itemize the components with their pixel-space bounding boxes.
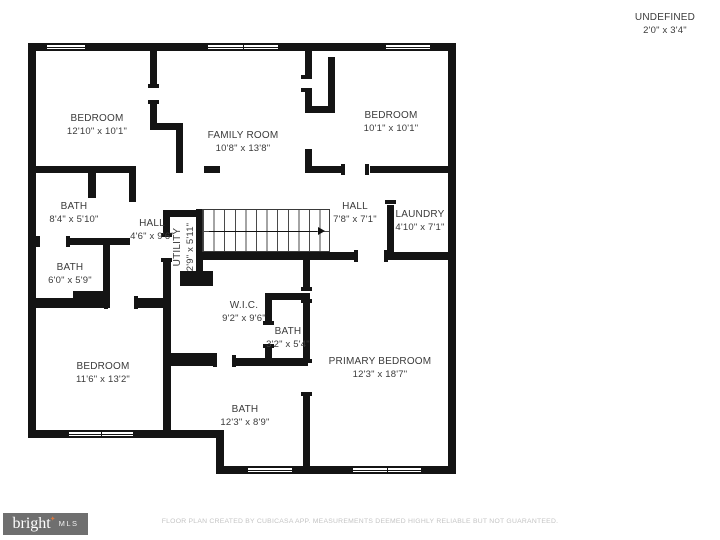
room-name: FAMILY ROOM (208, 130, 279, 143)
room-name: UNDEFINED (635, 12, 695, 25)
wall-segment (163, 353, 217, 366)
wall-segment (163, 262, 171, 434)
wall-segment (305, 51, 312, 77)
room-label-hall-right: HALL 7'8" x 7'1" (333, 201, 377, 226)
room-name: BEDROOM (364, 110, 419, 123)
stairs-arrow-head (318, 227, 325, 235)
room-dimensions: 2'0" x 3'4" (635, 24, 695, 36)
wall-segment (150, 51, 157, 87)
window-mullion (387, 468, 388, 472)
room-label-bath-bottom: BATH 12'3" x 8'9" (220, 404, 269, 429)
room-name: HALL (130, 218, 174, 231)
wall-segment (448, 43, 456, 474)
room-label-laundry: LAUNDRY 4'10" x 7'1" (395, 209, 444, 234)
room-name: BATH (266, 326, 310, 339)
room-name: UTILITY (172, 223, 185, 272)
window (385, 44, 431, 50)
wall-segment (265, 348, 272, 366)
room-label-bedroom-top-left: BEDROOM 12'10" x 10'1" (67, 113, 127, 138)
window-glass-line (386, 47, 430, 48)
room-label-hall-left: HALL 4'6" x 9'6" (130, 218, 174, 243)
room-dimensions: 12'10" x 10'1" (67, 125, 127, 137)
window (207, 44, 279, 50)
room-label-family-room: FAMILY ROOM 10'8" x 13'8" (208, 130, 279, 155)
room-label-primary-bedroom: PRIMARY BEDROOM 12'3" x 18'7" (329, 356, 432, 381)
door-jamb (301, 392, 312, 396)
room-name: BATH (220, 404, 269, 417)
window (247, 467, 293, 473)
room-dimensions: 2'9" x 5'11" (184, 223, 196, 272)
wall-segment (180, 271, 213, 286)
door-jamb (365, 164, 369, 175)
stairs-direction-arrow (209, 231, 317, 232)
wall-segment (28, 166, 136, 173)
window (46, 44, 86, 50)
disclaimer-text: FLOOR PLAN CREATED BY CUBICASA APP. MEAS… (0, 518, 720, 525)
window-glass-line (248, 470, 292, 471)
room-dimensions: 4'6" x 9'6" (130, 230, 174, 242)
door-jamb (341, 164, 345, 175)
door-jamb (148, 100, 159, 104)
door-jamb (385, 200, 396, 204)
wall-segment (305, 106, 335, 113)
door-jamb (301, 359, 312, 363)
room-dimensions: 12'3" x 18'7" (329, 368, 432, 380)
room-label-bath-mid-left: BATH 6'0" x 5'9" (48, 262, 92, 287)
wall-segment (204, 166, 220, 173)
window-glass-line (47, 47, 85, 48)
room-name: BATH (49, 201, 98, 214)
floor-plan-page: BEDROOM 12'10" x 10'1" FAMILY ROOM 10'8"… (0, 0, 720, 540)
room-name: PRIMARY BEDROOM (329, 356, 432, 369)
door-jamb (384, 250, 388, 262)
window (68, 431, 134, 437)
room-dimensions: 9'2" x 9'6" (222, 312, 266, 324)
wall-segment (370, 166, 448, 173)
door-jamb (104, 296, 108, 309)
wall-segment (70, 238, 130, 245)
room-label-utility: UTILITY 2'9" x 5'11" (172, 223, 197, 272)
room-name: BEDROOM (67, 113, 127, 126)
wall-segment (387, 205, 394, 252)
door-jamb (301, 299, 312, 303)
door-jamb (134, 296, 138, 309)
window-mullion (243, 45, 244, 49)
room-label-bath-small: BATH 3'2" x 5'4" (266, 326, 310, 351)
wall-segment (88, 173, 96, 198)
door-jamb (301, 88, 312, 92)
door-jamb (301, 75, 312, 79)
room-name: BEDROOM (76, 361, 130, 374)
wall-segment (129, 166, 136, 202)
door-jamb (354, 250, 358, 262)
room-dimensions: 4'10" x 7'1" (395, 221, 444, 233)
door-jamb (161, 258, 172, 262)
wall-segment (303, 255, 310, 290)
room-dimensions: 10'1" x 10'1" (364, 122, 419, 134)
wall-segment (197, 252, 357, 260)
room-dimensions: 3'2" x 5'4" (266, 338, 310, 350)
wall-segment (328, 57, 335, 113)
door-jamb (232, 355, 236, 367)
door-jamb (66, 236, 70, 247)
room-label-undefined-space: UNDEFINED 2'0" x 3'4" (635, 12, 695, 37)
staircase (202, 209, 330, 252)
wall-segment (387, 252, 448, 260)
room-name: W.I.C. (222, 300, 266, 313)
room-label-wic: W.I.C. 9'2" x 9'6" (222, 300, 266, 325)
wall-segment (303, 396, 310, 474)
window (352, 467, 422, 473)
door-jamb (301, 287, 312, 291)
wall-segment (103, 245, 110, 295)
wall-segment (176, 123, 183, 173)
room-dimensions: 7'8" x 7'1" (333, 213, 377, 225)
room-dimensions: 6'0" x 5'9" (48, 274, 92, 286)
room-label-bedroom-top-right: BEDROOM 10'1" x 10'1" (364, 110, 419, 135)
wall-segment (305, 166, 345, 173)
room-dimensions: 12'3" x 8'9" (220, 416, 269, 428)
window-mullion (101, 432, 102, 436)
door-jamb (148, 84, 159, 88)
room-dimensions: 10'8" x 13'8" (208, 142, 279, 154)
wall-segment (28, 43, 36, 438)
door-jamb (36, 236, 40, 247)
room-name: HALL (333, 201, 377, 214)
room-label-bedroom-bottom-left: BEDROOM 11'6" x 13'2" (76, 361, 130, 386)
wall-segment (28, 298, 106, 308)
door-jamb (213, 355, 217, 367)
room-name: BATH (48, 262, 92, 275)
room-dimensions: 11'6" x 13'2" (76, 373, 130, 385)
room-name: LAUNDRY (395, 209, 444, 222)
room-dimensions: 8'4" x 5'10" (49, 213, 98, 225)
room-label-bath-upper-left: BATH 8'4" x 5'10" (49, 201, 98, 226)
